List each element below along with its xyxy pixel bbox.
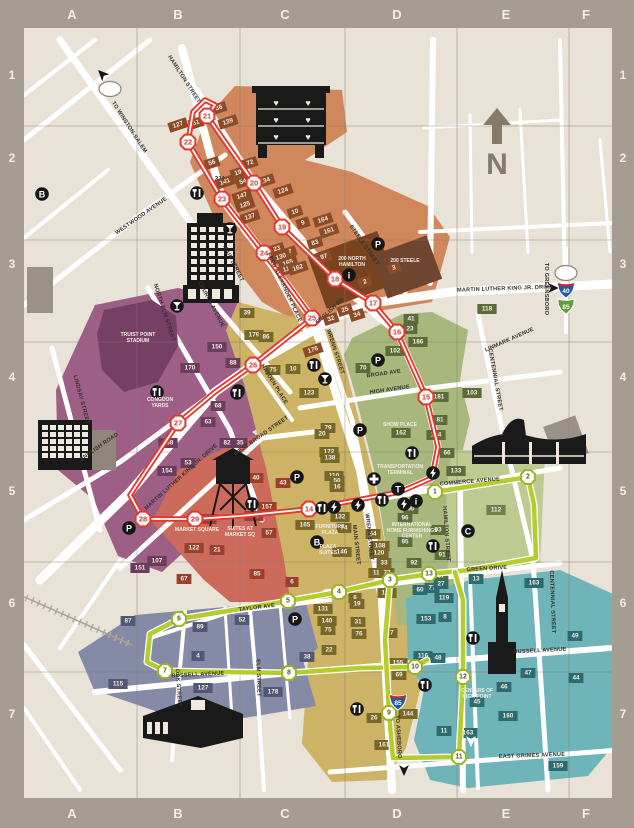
- building-68: 68: [211, 401, 226, 411]
- window: [224, 289, 232, 299]
- icon-letter: i: [415, 496, 418, 506]
- building-127: 127: [193, 683, 212, 693]
- icon-letter: P: [375, 355, 381, 365]
- grid-column-label-top-A: A: [67, 7, 77, 22]
- window: [50, 439, 56, 444]
- window: [200, 251, 206, 256]
- north-label: N: [486, 148, 508, 181]
- building-131: 131: [313, 604, 332, 614]
- stop-number: 20: [250, 179, 258, 188]
- fork-tines: [353, 705, 357, 708]
- grid-row-label-right-3: 3: [620, 257, 627, 271]
- red-route-stop-15: 15: [419, 390, 434, 405]
- building-number: 161: [379, 742, 390, 749]
- building-number: 170: [185, 365, 196, 372]
- building-119: 119: [434, 593, 453, 603]
- stop-number: 16: [393, 328, 401, 337]
- area-label-show-place: SHOW PLACE: [383, 422, 418, 428]
- window: [209, 235, 215, 240]
- grid-column-label-top-B: B: [173, 7, 182, 22]
- green-route-stop-7: 7: [158, 664, 172, 678]
- building-118: 118: [477, 304, 496, 314]
- bar-icon: [223, 222, 237, 236]
- heart-pull: ♥: [305, 132, 310, 142]
- red-route-stop-27: 27: [171, 416, 186, 431]
- building-number: 31: [354, 619, 362, 626]
- fork-tines: [310, 361, 314, 364]
- building-153: 153: [416, 614, 435, 624]
- building-number: 11: [441, 728, 448, 735]
- building-number: 159: [553, 763, 564, 770]
- red-route-stop-18: 18: [328, 272, 343, 287]
- building-number: 81: [436, 417, 444, 424]
- knife: [414, 449, 416, 457]
- c-icon: C: [461, 524, 475, 538]
- window: [82, 446, 88, 451]
- knife: [159, 388, 161, 396]
- building-number: 160: [503, 713, 514, 720]
- stop-number: 28: [139, 515, 147, 524]
- window: [58, 446, 64, 451]
- building-number: 165: [300, 522, 311, 529]
- grid-row-label-right-2: 2: [620, 151, 627, 165]
- grid-row-label-right-5: 5: [620, 484, 627, 498]
- building-86: 86: [259, 332, 274, 342]
- building-number: 86: [262, 334, 270, 341]
- building-76: 76: [352, 629, 367, 639]
- window: [74, 446, 80, 451]
- building-number: 19: [353, 601, 361, 608]
- building-26: 26: [367, 713, 382, 723]
- building-number: 140: [322, 618, 333, 625]
- green-route-stop-3: 3: [383, 573, 397, 587]
- building-number: 138: [325, 455, 336, 462]
- building-162: 162: [391, 428, 410, 438]
- red-route-stop-20: 20: [247, 176, 262, 191]
- icon-disc: [350, 702, 364, 716]
- fork-tines: [378, 496, 382, 499]
- arena-slit: [529, 442, 532, 464]
- grid-row-label-right-1: 1: [620, 68, 627, 82]
- building-number: 181: [434, 394, 445, 401]
- knife: [199, 189, 201, 197]
- parking-icon: P: [371, 353, 385, 367]
- building-number: 131: [318, 606, 329, 613]
- icon-disc: [230, 386, 244, 400]
- green-route-stop-9: 9: [382, 706, 396, 720]
- building-178: 178: [263, 687, 282, 697]
- building-number: 70: [359, 365, 367, 372]
- building-number: 39: [243, 310, 251, 317]
- martini-base: [175, 309, 180, 310]
- martini-base: [228, 232, 233, 233]
- shield-number: 311: [215, 175, 226, 182]
- restaurant-icon: [375, 493, 389, 507]
- building-number: 120: [374, 550, 385, 557]
- building-number: 123: [304, 390, 315, 397]
- building-150: 150: [207, 342, 226, 352]
- window: [66, 453, 72, 458]
- shield-number: 40: [562, 288, 570, 295]
- restaurant-icon: [466, 631, 480, 645]
- chest-leg: [258, 145, 267, 158]
- skylight: [191, 700, 205, 710]
- icon-letter: T: [395, 484, 401, 494]
- building-186: 186: [408, 337, 427, 347]
- area-label-market-square: MARKET SQUARE: [175, 527, 220, 533]
- stop-number: 8: [287, 670, 291, 677]
- building-number: 20: [318, 431, 326, 438]
- building-number: 132: [335, 514, 346, 521]
- building-number: 22: [325, 647, 333, 654]
- building-170: 170: [180, 363, 199, 373]
- window: [66, 446, 72, 451]
- red-route-stop-21: 21: [200, 109, 215, 124]
- building-number: 163: [463, 730, 474, 737]
- red-route-stop-29: 29: [188, 512, 203, 527]
- window: [58, 453, 64, 458]
- window: [50, 453, 56, 458]
- frame-right: [612, 0, 634, 828]
- green-route-stop-10: 10: [408, 660, 422, 674]
- green-route-stop-11: 11: [452, 750, 466, 764]
- shield-number: 85: [562, 304, 570, 311]
- building-63: 63: [201, 417, 216, 427]
- bar-icon: [318, 372, 332, 386]
- building-number: 10: [289, 366, 297, 373]
- building-number: 162: [396, 430, 407, 437]
- stop-number: 27: [174, 419, 182, 428]
- grid-column-label-top-C: C: [280, 7, 290, 22]
- building-41: 41: [404, 314, 419, 324]
- stop-number: 10: [411, 664, 419, 671]
- building-47: 47: [521, 668, 536, 678]
- icon-disc: [245, 497, 259, 511]
- window: [50, 432, 56, 437]
- window: [227, 275, 233, 280]
- window: [200, 227, 206, 232]
- green-route-stop-8: 8: [282, 666, 296, 680]
- building-123: 123: [299, 388, 318, 398]
- downtown-district-map: 1273661139567219141541341241091641618323…: [0, 0, 634, 828]
- building-27: 27: [434, 579, 449, 589]
- stop-number: 19: [278, 223, 286, 232]
- area-label-200-north-hamilton: 200 NORTHHAMILTON: [338, 256, 366, 268]
- restaurant-icon: [190, 186, 204, 200]
- window: [209, 251, 215, 256]
- grid-column-label-bottom-C: C: [280, 806, 290, 821]
- info-icon: i: [342, 268, 356, 282]
- fork-tines: [429, 542, 433, 545]
- building-138: 138: [320, 453, 339, 463]
- frame-top: [0, 0, 634, 28]
- building-number: 163: [529, 580, 540, 587]
- fork-tines: [408, 449, 412, 452]
- arena-slit: [556, 442, 559, 464]
- restaurant-icon: [307, 358, 321, 372]
- icon-letter: P: [126, 523, 132, 533]
- building-40: 40: [249, 473, 264, 483]
- grid-column-label-bottom-B: B: [173, 806, 182, 821]
- parking-icon: P: [290, 470, 304, 484]
- stop-number: 15: [422, 393, 430, 402]
- window: [218, 275, 224, 280]
- ev-icon: [426, 466, 440, 480]
- building-number: 122: [189, 545, 200, 552]
- building-69: 69: [392, 670, 407, 680]
- building-8: 8: [439, 612, 452, 622]
- building-number: 82: [223, 440, 231, 447]
- building-107: 107: [147, 556, 166, 566]
- red-route-stop-14: 14: [302, 502, 317, 517]
- window: [209, 227, 215, 232]
- stop-number: 13: [425, 571, 433, 578]
- parking-icon: P: [353, 423, 367, 437]
- building-38: 38: [300, 652, 315, 662]
- martini-stem: [324, 379, 325, 382]
- building-number: 92: [410, 560, 418, 567]
- hotel-roof: [197, 213, 223, 223]
- stop-number: 26: [249, 361, 257, 370]
- building-number: 157: [262, 504, 273, 511]
- chest-body: [256, 93, 326, 145]
- window: [209, 259, 215, 264]
- building-number: 48: [434, 655, 442, 662]
- building-66: 66: [440, 448, 455, 458]
- window: [58, 439, 64, 444]
- street: [430, 40, 433, 283]
- window: [191, 251, 197, 256]
- stop-number: 11: [455, 754, 463, 761]
- fork-tines: [469, 634, 473, 637]
- building-52: 52: [235, 615, 250, 625]
- green-route-stop-12: 12: [456, 670, 470, 684]
- building-number: 49: [571, 633, 579, 640]
- building-87: 87: [121, 616, 136, 626]
- window: [74, 439, 80, 444]
- area-label-centers-of-high-point: CENTERS OFHIGH POINT: [461, 688, 493, 700]
- shield-oval: [99, 82, 121, 97]
- building-144: 144: [398, 709, 417, 719]
- restaurant-icon: [405, 446, 419, 460]
- building-number: 46: [500, 684, 508, 691]
- heart-pull: ♥: [305, 115, 310, 125]
- grid-column-label-top-D: D: [392, 7, 401, 22]
- building-number: 103: [467, 390, 478, 397]
- building-number: 150: [212, 344, 223, 351]
- window: [218, 235, 224, 240]
- window: [74, 425, 80, 430]
- red-route-stop-28: 28: [136, 512, 151, 527]
- building-103: 103: [462, 388, 481, 398]
- window: [200, 259, 206, 264]
- window: [74, 432, 80, 437]
- tower-window: [499, 604, 505, 612]
- building-number: 127: [198, 685, 209, 692]
- stop-number: 17: [369, 299, 377, 308]
- building-70: 70: [356, 363, 371, 373]
- building-number: 23: [406, 326, 414, 333]
- martini-stem: [229, 229, 230, 232]
- building-89: 89: [193, 622, 208, 632]
- map-page: 1273661139567219141541341241091641618323…: [0, 0, 634, 828]
- building-165: 165: [295, 520, 314, 530]
- stop-number: 14: [305, 505, 314, 514]
- shield-number: 85: [394, 700, 402, 707]
- building-number: 40: [252, 475, 260, 482]
- building-number: 52: [238, 617, 246, 624]
- building-57: 57: [262, 528, 277, 538]
- tank: [216, 460, 250, 484]
- grid-column-label-top-F: F: [582, 7, 590, 22]
- knife: [316, 361, 318, 369]
- building-133: 133: [446, 466, 465, 476]
- restaurant-icon: [426, 539, 440, 553]
- grid-row-label-right-7: 7: [620, 707, 627, 721]
- window: [42, 446, 48, 451]
- heart-pull: ♥: [273, 132, 278, 142]
- grid-column-label-top-E: E: [502, 7, 511, 22]
- knife: [384, 496, 386, 504]
- building-number: 26: [370, 715, 378, 722]
- building-43: 43: [276, 478, 291, 488]
- grid-row-label-left-6: 6: [9, 596, 16, 610]
- building-11: 11: [437, 726, 452, 736]
- fork-tines: [193, 189, 197, 192]
- building-number: 133: [451, 468, 462, 475]
- building-67: 67: [177, 574, 192, 584]
- building-4: 4: [192, 651, 205, 661]
- stop-number: 4: [337, 589, 341, 596]
- building-number: 60: [416, 587, 424, 594]
- chest-top: [252, 86, 330, 93]
- building-20: 20: [315, 429, 330, 439]
- grid-row-label-left-4: 4: [9, 370, 16, 384]
- building-number: 63: [204, 419, 212, 426]
- building-22: 22: [322, 645, 337, 655]
- grid-row-label-right-4: 4: [620, 370, 627, 384]
- building-number: 13: [472, 576, 480, 583]
- green-route-stop-13: 13: [422, 567, 436, 581]
- building-151: 151: [130, 563, 149, 573]
- icon-letter: B: [39, 189, 46, 199]
- icon-letter: P: [357, 425, 363, 435]
- window: [50, 446, 56, 451]
- building-75: 75: [321, 625, 336, 635]
- building-21: 21: [210, 545, 225, 555]
- red-route-stop-17: 17: [366, 296, 381, 311]
- gray-building-a: [27, 267, 53, 313]
- restaurant-icon: [230, 386, 244, 400]
- building-44: 44: [569, 673, 584, 683]
- heart-pull: ♥: [305, 98, 310, 108]
- icon-letter: i: [348, 270, 351, 280]
- building-154: 154: [157, 466, 176, 476]
- building-number: 115: [113, 681, 124, 688]
- stop-number: 21: [203, 112, 211, 121]
- parking-icon: P: [288, 612, 302, 626]
- window: [50, 425, 56, 430]
- building-number: 68: [214, 403, 222, 410]
- window: [200, 275, 206, 280]
- building-92: 92: [407, 558, 422, 568]
- window: [42, 432, 48, 437]
- building-82: 82: [220, 438, 235, 448]
- grid-row-label-left-1: 1: [9, 68, 16, 82]
- ev-icon: [351, 498, 365, 512]
- building-19: 19: [350, 599, 365, 609]
- window: [58, 432, 64, 437]
- icon-disc: [190, 186, 204, 200]
- icon-disc: [405, 446, 419, 460]
- fork-tines: [318, 504, 322, 507]
- knife: [435, 542, 437, 550]
- stop-number: 18: [331, 275, 339, 284]
- building-number: 179: [249, 332, 260, 339]
- knife: [239, 389, 241, 397]
- stop-number: 2: [526, 474, 530, 481]
- restaurant-icon: [245, 497, 259, 511]
- building-number: 85: [253, 571, 261, 578]
- building-13: 13: [469, 574, 484, 584]
- icon-letter: P: [375, 239, 381, 249]
- stop-number: 23: [218, 195, 226, 204]
- window: [209, 267, 215, 272]
- building-number: 151: [135, 565, 146, 572]
- building-number: 69: [395, 672, 403, 679]
- building-number: 38: [303, 654, 311, 661]
- b-icon: B: [35, 187, 49, 201]
- building-number: 33: [380, 560, 388, 567]
- building-number: 95: [401, 539, 409, 546]
- grid-row-label-left-7: 7: [9, 707, 16, 721]
- stop-number: 22: [184, 138, 192, 147]
- building-88: 88: [226, 358, 241, 368]
- grid-column-label-bottom-A: A: [67, 806, 77, 821]
- building-number: 57: [265, 530, 273, 537]
- transit-icon: T: [391, 482, 405, 496]
- stop-number: 5: [286, 598, 290, 605]
- building-number: 87: [124, 618, 132, 625]
- green-route-stop-5: 5: [281, 594, 295, 608]
- window: [66, 432, 72, 437]
- window: [66, 425, 72, 430]
- building-number: 66: [443, 450, 451, 457]
- icon-disc: [426, 539, 440, 553]
- area-label-suites-at-market-sq: SUITES ATMARKET SQ: [225, 526, 255, 538]
- window: [218, 259, 224, 264]
- info-icon: i: [409, 494, 423, 508]
- green-route-stop-4: 4: [332, 585, 346, 599]
- area-label-plaza-suites: PLAZASUITES: [319, 544, 338, 556]
- building-number: 4: [196, 653, 200, 660]
- icon-disc: [375, 493, 389, 507]
- chest-leg: [315, 145, 324, 158]
- restaurant-icon: [418, 678, 432, 692]
- knife: [427, 681, 429, 689]
- fork-tines: [233, 389, 237, 392]
- window: [82, 425, 88, 430]
- building-112: 112: [486, 505, 505, 515]
- window: [82, 432, 88, 437]
- building-number: 43: [279, 480, 287, 487]
- window: [82, 439, 88, 444]
- arena-slit: [502, 442, 505, 464]
- restaurant-icon: [350, 702, 364, 716]
- window: [200, 235, 206, 240]
- building-number: 44: [572, 675, 580, 682]
- window: [188, 289, 196, 299]
